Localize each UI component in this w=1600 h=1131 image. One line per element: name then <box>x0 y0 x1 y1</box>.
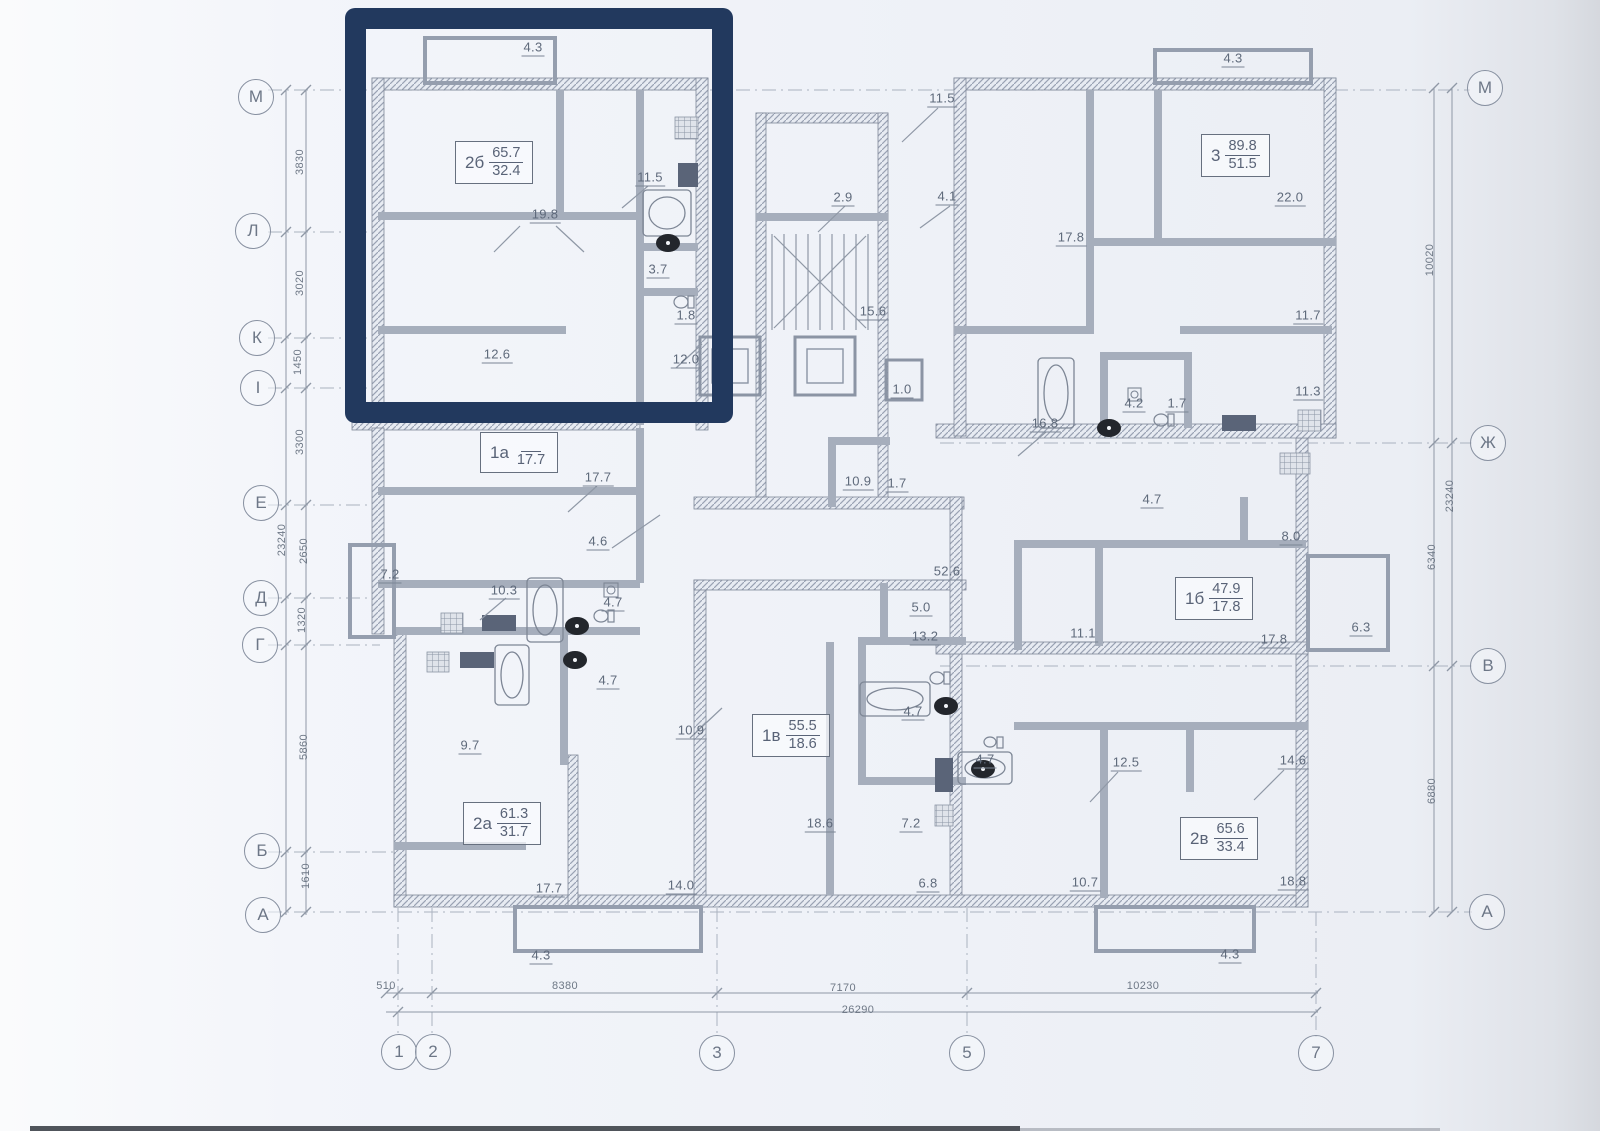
scan-edge-artifact <box>30 1126 1020 1131</box>
floorplan-scan: 4.3 11.5 19.8 3.7 1.8 12.6 12.0 11.5 2.9… <box>0 0 1600 1131</box>
highlight-box <box>345 8 733 423</box>
floorplan-drawing <box>0 0 1600 1131</box>
staircase <box>772 234 868 330</box>
elevator-shafts <box>700 337 922 400</box>
